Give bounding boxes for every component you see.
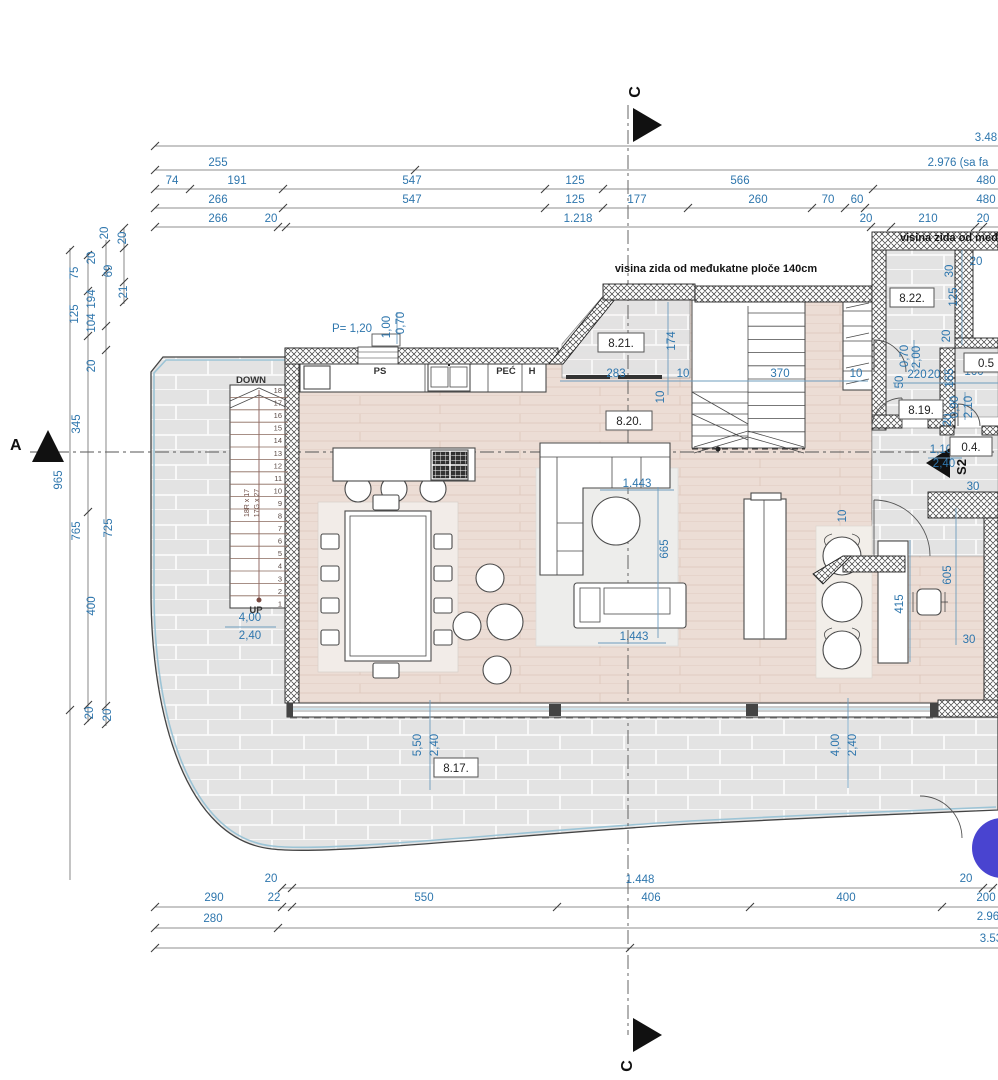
- dim-label: 30: [944, 265, 956, 278]
- dim-label: 266: [208, 194, 227, 206]
- dim-label: 2,10: [963, 396, 975, 418]
- side-table: [822, 582, 862, 622]
- dim-label: 20: [970, 256, 983, 268]
- dim-label: 280: [203, 913, 222, 925]
- wall-822-bottom-1: [872, 415, 902, 428]
- dining-chair: [373, 663, 399, 678]
- wall-study-top: [928, 492, 998, 518]
- stair-step-number: 13: [274, 449, 282, 458]
- section-label-s2: S2: [954, 459, 969, 475]
- dining-chair: [373, 495, 399, 510]
- dim-label: 260: [748, 194, 767, 206]
- dim-label: 4,00: [830, 734, 842, 756]
- dim-label: H: [529, 366, 536, 377]
- dim-label: 0,70: [395, 312, 407, 334]
- dining-chair: [434, 598, 452, 613]
- stair-step-number: 12: [274, 461, 282, 470]
- stair-start-dot: [257, 598, 262, 603]
- section-label-c-top: C: [627, 86, 644, 98]
- round-chair: [483, 656, 511, 684]
- stair-step-number: 11: [274, 474, 282, 483]
- wall-821-top: [603, 284, 695, 300]
- dim-label: 191: [227, 175, 246, 187]
- wall-04-2: [982, 426, 998, 435]
- dim-label: 20: [84, 707, 96, 720]
- dim-label: 2.976 (sa fa: [928, 157, 989, 169]
- dim-label: 18R x 17: [244, 489, 251, 517]
- dim-label: 480: [976, 175, 995, 187]
- dim-label: 3.48: [975, 132, 997, 144]
- dim-label: 400: [836, 892, 855, 904]
- dim-label: 22: [268, 892, 281, 904]
- dim-label: 174: [666, 331, 678, 351]
- dim-label: 20: [102, 709, 114, 722]
- burner: [451, 452, 467, 464]
- dining-chair: [321, 566, 339, 581]
- dim-label: 20: [265, 213, 278, 225]
- stair-step-number: 14: [274, 436, 282, 445]
- round-chair: [453, 612, 481, 640]
- dim-label: 220: [907, 369, 926, 381]
- dim-label: 70: [822, 194, 835, 206]
- dim-label: 1.443: [623, 478, 652, 490]
- dim-label: 20: [117, 232, 129, 245]
- round-chair: [476, 564, 504, 592]
- stair-step-number: 8: [278, 512, 282, 521]
- room-label: 8.22.: [899, 293, 925, 305]
- stair-step-number: 4: [278, 562, 282, 571]
- dim-label: 10: [837, 510, 849, 523]
- stair-step-number: 17: [274, 399, 282, 408]
- section-arrow-c-top-icon: [633, 108, 662, 142]
- glazing-post: [930, 703, 938, 717]
- coffee-table: [592, 497, 640, 545]
- fridge: [304, 366, 330, 389]
- dim-label: 725: [103, 518, 115, 537]
- dim-label: 20: [928, 369, 941, 381]
- dim-label: 370: [770, 368, 789, 380]
- dim-label: 290: [204, 892, 223, 904]
- dining-chair: [434, 566, 452, 581]
- stair-step-number: 9: [278, 499, 282, 508]
- dim-label: 547: [402, 175, 421, 187]
- dim-label: 50: [894, 376, 906, 389]
- dim-label: 20: [977, 213, 990, 225]
- bench-sofa: [574, 583, 686, 628]
- dim-label: 20: [99, 227, 111, 240]
- dim-label: UP: [249, 605, 263, 616]
- dim-label: PEĆ: [496, 365, 516, 377]
- armchair: [823, 631, 861, 669]
- burner: [451, 466, 467, 478]
- dim-label: 74: [166, 175, 179, 187]
- section-label-a: A: [10, 437, 22, 454]
- dim-label: 125: [565, 194, 584, 206]
- dim-label: 765: [71, 521, 83, 540]
- stair-step-number: 1: [278, 599, 282, 608]
- wall-05-top: [955, 338, 998, 348]
- stair-step-number: 10: [274, 486, 282, 495]
- dim-label: 550: [414, 892, 433, 904]
- floor-plan-drawing: A C C S2 visina zida od međukatne ploče …: [0, 0, 998, 1080]
- stair-step-number: 16: [274, 411, 282, 420]
- kitchen-window: [358, 347, 398, 364]
- wall-height-note-center: visina zida od međukatne ploče 140cm: [615, 263, 818, 275]
- wall-right: [984, 518, 998, 704]
- dim-label: PS: [374, 366, 387, 377]
- dim-label: 400: [86, 596, 98, 615]
- dim-label: 406: [641, 892, 660, 904]
- dim-label: 21: [118, 286, 130, 299]
- round-table: [487, 604, 523, 640]
- dim-label: 480: [976, 194, 995, 206]
- dim-label: 165: [944, 368, 956, 387]
- burner: [433, 452, 449, 464]
- dim-label: 2.96: [977, 911, 998, 923]
- wall-height-note-right: visina zida od međukatne ploče 140cm: [900, 232, 998, 244]
- dim-label: 20: [960, 873, 973, 885]
- dim-label: 1.443: [620, 631, 649, 643]
- dining-chair: [321, 630, 339, 645]
- wall-bottom-right: [938, 700, 998, 717]
- stair-step-number: 18: [274, 386, 282, 395]
- wall-left: [285, 348, 299, 703]
- dim-label: 3.53: [980, 933, 998, 945]
- stair-step-number: 6: [278, 537, 282, 546]
- wall-822-left: [872, 240, 886, 430]
- dim-label: 20: [265, 873, 278, 885]
- stair-step-number: 2: [278, 587, 282, 596]
- stair-step-number: 5: [278, 549, 282, 558]
- dim-label: 415: [894, 594, 906, 613]
- dim-label: 20: [942, 414, 954, 427]
- section-label-c-bottom: C: [619, 1060, 636, 1072]
- dim-label: 20: [86, 360, 98, 373]
- room-label: 8.17.: [443, 763, 469, 775]
- dim-label: 2,40: [239, 630, 261, 642]
- section-arrow-c-bottom-icon: [633, 1018, 662, 1052]
- dim-label: 2,40: [847, 734, 859, 756]
- dim-label: 20: [860, 213, 873, 225]
- dim-label: 1.218: [564, 213, 593, 225]
- dim-label: 5,50: [412, 734, 424, 756]
- wall-top-1: [285, 348, 358, 364]
- room-label: 8.20.: [616, 416, 642, 428]
- dim-label: 665: [659, 539, 671, 558]
- dim-label: 1,00: [381, 316, 393, 338]
- dim-label: 605: [942, 565, 954, 584]
- burner: [433, 466, 449, 478]
- room-label: 8.21.: [608, 338, 634, 350]
- dim-label: 60: [851, 194, 864, 206]
- dim-label: 10: [655, 391, 667, 404]
- dim-label: 0,70: [899, 345, 911, 367]
- dim-label: 2,40: [933, 458, 955, 470]
- dim-label: 1.448: [626, 874, 655, 886]
- glazing-post: [746, 704, 758, 716]
- armchair-set: [822, 534, 862, 669]
- dim-label: 125: [565, 175, 584, 187]
- dim-label: 30: [967, 481, 980, 493]
- wall-819-bottom: [843, 556, 905, 572]
- dim-label: 17G x 27: [254, 489, 261, 518]
- dim-label: 965: [53, 470, 65, 489]
- dim-label: 266: [208, 213, 227, 225]
- dim-label: 547: [402, 194, 421, 206]
- glazed-wall-south: [287, 703, 938, 717]
- dim-label: 75: [69, 267, 81, 280]
- dim-label: 30: [963, 634, 976, 646]
- dim-label: 10: [850, 368, 863, 380]
- stair-step-number: 15: [274, 424, 282, 433]
- dim-label: P= 1,20: [332, 323, 372, 335]
- wall-top-2: [398, 348, 558, 364]
- dim-label: 10: [677, 368, 690, 380]
- dim-label: 2,40: [429, 734, 441, 756]
- dim-label: 104: [86, 313, 98, 333]
- room-label: 8.19.: [908, 405, 934, 417]
- section-arrow-a-icon: [32, 430, 64, 462]
- dim-label: 20: [941, 330, 953, 343]
- dim-label: 255: [208, 157, 227, 169]
- dim-label: 125: [69, 304, 81, 323]
- dim-label: 200: [976, 892, 995, 904]
- dim-label: 194: [86, 289, 98, 309]
- glazing-post: [549, 704, 561, 716]
- glazing-post: [287, 703, 293, 717]
- dining-chair: [434, 630, 452, 645]
- tv-cabinet: [744, 499, 786, 639]
- dining-chair: [321, 598, 339, 613]
- room-label: 0.5: [978, 358, 994, 370]
- room-label: 0.4.: [961, 442, 980, 454]
- dim-label: 125: [948, 287, 960, 306]
- tv-panel: [751, 493, 781, 500]
- wall-stair-top: [695, 286, 872, 302]
- blue-badge: [972, 818, 998, 878]
- dim-label: 1,10: [930, 444, 952, 456]
- dim-label: 210: [918, 213, 937, 225]
- dining-chair: [434, 534, 452, 549]
- dim-label: 177: [627, 194, 646, 206]
- dim-label: 69: [103, 265, 115, 278]
- dim-label: 20: [86, 252, 98, 265]
- dim-label: 2,00: [911, 346, 923, 368]
- dining-chair: [321, 534, 339, 549]
- dim-label: DOWN: [236, 375, 266, 386]
- dim-label: 566: [730, 175, 749, 187]
- stair-step-number: 3: [278, 574, 282, 583]
- dim-label: 283: [606, 368, 625, 380]
- dining-table: [345, 511, 431, 661]
- dim-label: 345: [71, 414, 83, 433]
- stair-step-number: 7: [278, 524, 282, 533]
